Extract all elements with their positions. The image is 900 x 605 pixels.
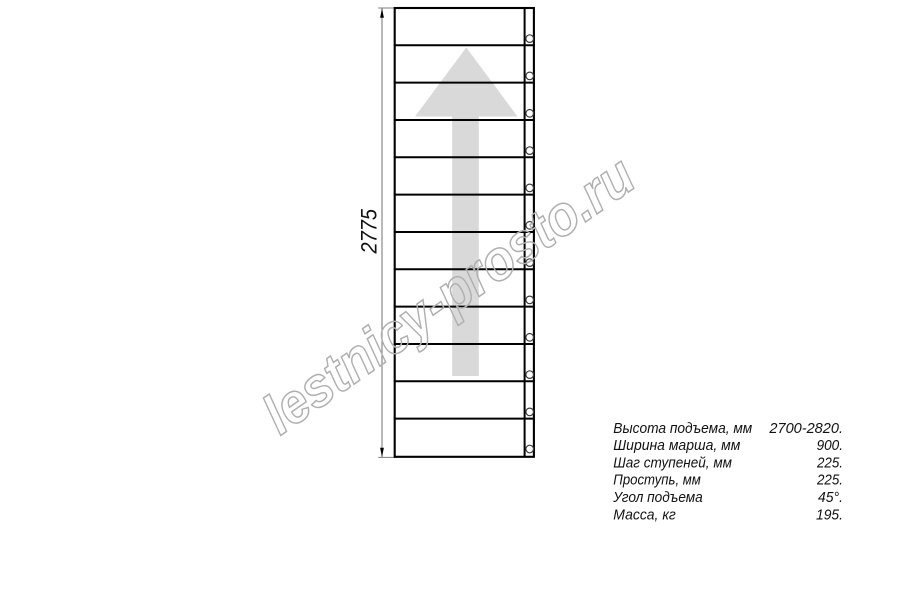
svg-text:45°.: 45°. <box>818 489 843 506</box>
svg-text:Шаг ступеней, мм: Шаг ступеней, мм <box>613 454 732 471</box>
svg-text:2700-2820.: 2700-2820. <box>768 420 843 437</box>
svg-text:225.: 225. <box>816 472 843 489</box>
svg-text:Ширина марша, мм: Ширина марша, мм <box>613 437 740 454</box>
svg-text:Проступь, мм: Проступь, мм <box>613 472 701 489</box>
svg-text:195.: 195. <box>816 506 843 523</box>
svg-text:2775: 2775 <box>357 208 382 254</box>
svg-text:225.: 225. <box>816 454 843 471</box>
svg-text:Высота подъема, мм: Высота подъема, мм <box>613 420 752 437</box>
svg-text:Угол подъема: Угол подъема <box>612 489 702 506</box>
svg-text:900.: 900. <box>817 437 843 454</box>
svg-text:Масса, кг: Масса, кг <box>613 506 676 523</box>
